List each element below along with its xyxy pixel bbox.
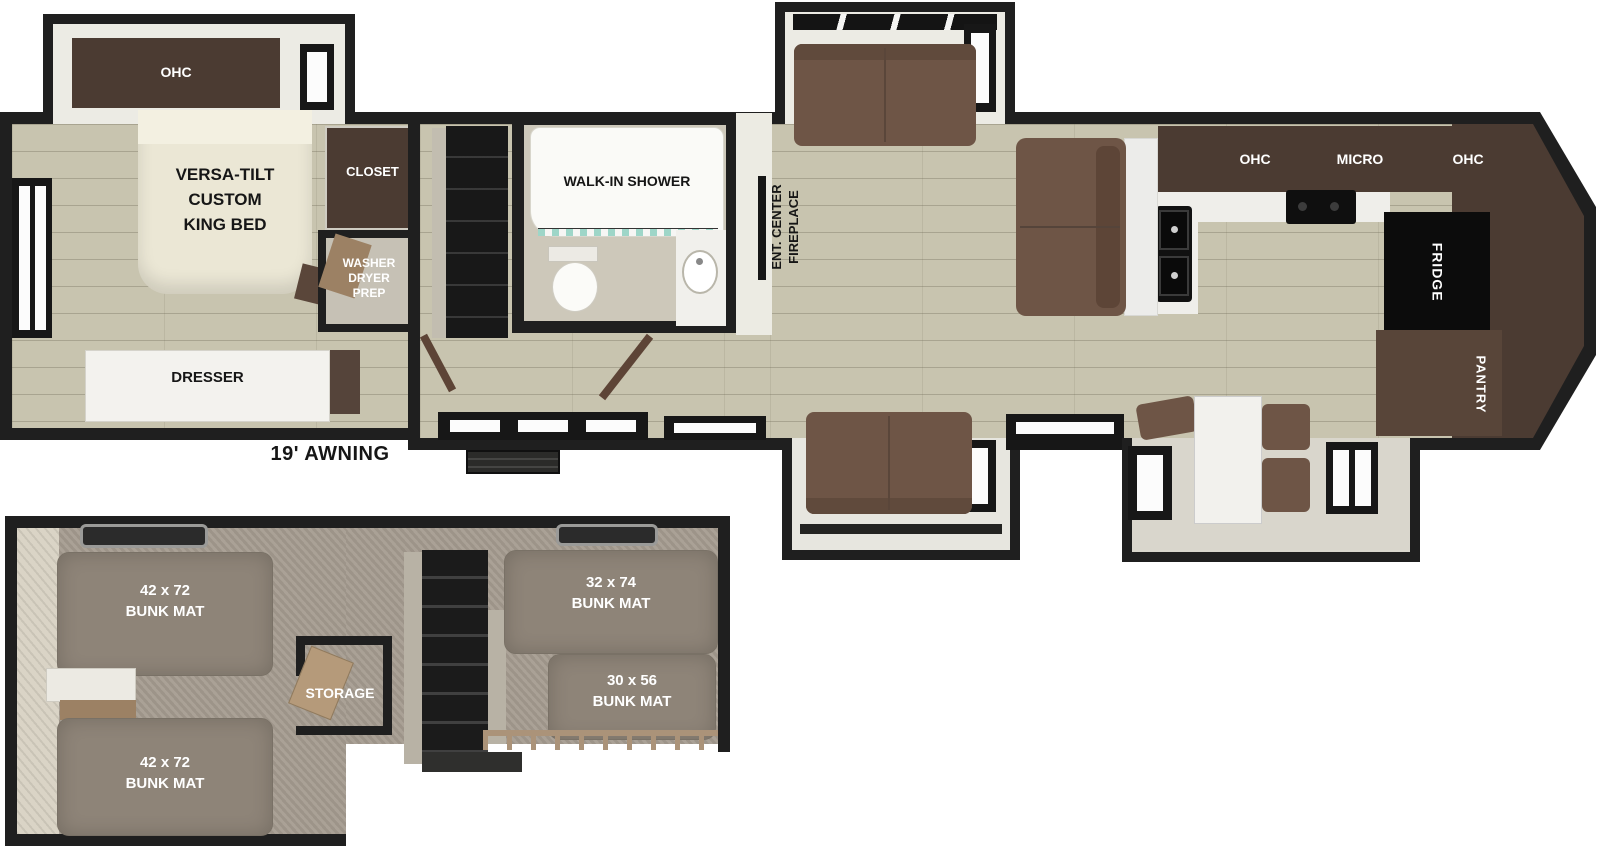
loft-right-wall bbox=[718, 516, 730, 752]
burner bbox=[1330, 202, 1339, 211]
bunk-label-line: 42 x 72 bbox=[57, 580, 273, 601]
window-pane bbox=[450, 420, 500, 432]
bedroom-side-window bbox=[12, 178, 52, 338]
window-pane bbox=[518, 420, 568, 432]
dresser-text: DRESSER bbox=[85, 368, 330, 388]
micro-text: MICRO bbox=[1310, 150, 1410, 168]
slideout-sill bbox=[800, 524, 1002, 534]
bunk-label-line: 30 x 56 bbox=[548, 670, 716, 691]
toilet-tank bbox=[548, 246, 598, 262]
bunk1-label: 42 x 72 BUNK MAT bbox=[57, 580, 273, 622]
storage-text: STORAGE bbox=[282, 684, 398, 702]
loft-railing bbox=[483, 730, 718, 750]
loft-stair-wall bbox=[404, 552, 422, 764]
window-pane bbox=[35, 186, 46, 330]
storage-wall bbox=[296, 726, 392, 735]
shower-text: WALK-IN SHOWER bbox=[530, 172, 724, 190]
dresser-label: DRESSER bbox=[85, 368, 330, 388]
fridge: FRIDGE bbox=[1384, 212, 1490, 332]
loft-stair-landing bbox=[422, 752, 522, 772]
floorplan-canvas: OHC VERSA-TILT CUSTOM KING BED CLOSET WA… bbox=[0, 0, 1600, 848]
bunk4-label: 30 x 56 BUNK MAT bbox=[548, 670, 716, 712]
loft-stairs bbox=[422, 550, 488, 754]
bath-faucet bbox=[696, 258, 703, 265]
window-pane bbox=[1333, 450, 1349, 506]
shower-label: WALK-IN SHOWER bbox=[530, 172, 724, 190]
ent-label-line: ENT. CENTER bbox=[768, 157, 785, 297]
sink-faucet bbox=[1171, 226, 1178, 233]
sink-faucet bbox=[1171, 272, 1178, 279]
window-pane bbox=[1355, 450, 1371, 506]
awning-text: 19' AWNING bbox=[250, 441, 410, 467]
range-cooktop bbox=[1286, 190, 1356, 224]
dinette-chair bbox=[1262, 404, 1310, 450]
skylight bbox=[80, 524, 208, 548]
burner bbox=[1298, 202, 1307, 211]
ent-center-label: ENT. CENTER FIREPLACE bbox=[768, 157, 802, 297]
toilet bbox=[552, 262, 598, 312]
window-pane bbox=[1016, 422, 1114, 434]
loft-nightstand bbox=[46, 668, 136, 702]
window-pane bbox=[307, 52, 327, 102]
loft-left-wall bbox=[5, 516, 17, 846]
entry-window-single bbox=[664, 416, 766, 440]
bed-label-line: CUSTOM bbox=[138, 187, 312, 212]
pantry-label: PANTRY bbox=[1472, 355, 1489, 413]
kitchen-ohc-left-label: OHC bbox=[1205, 150, 1305, 168]
main-stairs bbox=[446, 126, 508, 338]
theater-seat-console bbox=[1124, 138, 1158, 316]
bunk-label-line: BUNK MAT bbox=[57, 601, 273, 622]
bedroom-ohc-label: OHC bbox=[72, 63, 280, 81]
ent-label-line: FIREPLACE bbox=[785, 157, 802, 297]
bunk-label-line: BUNK MAT bbox=[504, 593, 718, 614]
rear-door-window bbox=[1006, 414, 1124, 450]
ent-center-wall bbox=[736, 113, 772, 335]
closet-label: CLOSET bbox=[325, 164, 420, 181]
window-pane bbox=[970, 448, 988, 504]
bunk3-label: 32 x 74 BUNK MAT bbox=[504, 572, 718, 614]
bath-sink bbox=[682, 250, 718, 294]
bunk-label-line: BUNK MAT bbox=[548, 691, 716, 712]
window-pane bbox=[674, 423, 756, 433]
washer-label-line: DRYER bbox=[318, 271, 420, 286]
bedroom-slideout-window bbox=[300, 44, 334, 110]
bedroom-ohc-text: OHC bbox=[72, 63, 280, 81]
washer-label-line: WASHER bbox=[318, 256, 420, 271]
entry-window-triple bbox=[438, 412, 648, 440]
bunk-label-line: BUNK MAT bbox=[57, 773, 273, 794]
washer-label: WASHER DRYER PREP bbox=[318, 256, 420, 301]
dinette-table bbox=[1194, 396, 1262, 524]
dinette-chair bbox=[1262, 458, 1310, 512]
fridge-label: FRIDGE bbox=[1428, 243, 1446, 302]
theater-seat-divider bbox=[1020, 226, 1120, 228]
dresser-side-cabinet bbox=[330, 350, 360, 414]
loft-nightstand-base bbox=[60, 700, 136, 720]
bed-pillows bbox=[138, 110, 312, 144]
kitchen-micro-label: MICRO bbox=[1310, 150, 1410, 168]
kitchen-ohc-right-label: OHC bbox=[1420, 150, 1516, 168]
window-pane bbox=[586, 420, 636, 432]
entry-step bbox=[466, 450, 560, 474]
closet-text: CLOSET bbox=[325, 164, 420, 181]
awning-label: 19' AWNING bbox=[250, 441, 410, 467]
window-pane bbox=[19, 186, 30, 330]
ohc-right-text: OHC bbox=[1420, 150, 1516, 168]
storage-wall bbox=[296, 636, 392, 645]
bed-label-line: VERSA-TILT bbox=[138, 162, 312, 187]
bed-label-line: KING BED bbox=[138, 212, 312, 237]
bunk-label-line: 32 x 74 bbox=[504, 572, 718, 593]
ohc-left-text: OHC bbox=[1205, 150, 1305, 168]
washer-label-line: PREP bbox=[318, 286, 420, 301]
sofa-divider bbox=[884, 48, 886, 142]
dinette-window-right bbox=[1326, 442, 1378, 514]
dinette-window-left bbox=[1128, 446, 1172, 520]
window-pane bbox=[1137, 455, 1163, 511]
sofa-divider bbox=[888, 416, 890, 510]
pantry-label-box: PANTRY bbox=[1462, 334, 1498, 434]
skylight bbox=[556, 524, 658, 546]
fireplace-tv-bar bbox=[758, 176, 766, 280]
storage-label: STORAGE bbox=[282, 684, 398, 702]
bed-label: VERSA-TILT CUSTOM KING BED bbox=[138, 162, 312, 237]
bunk-label-line: 42 x 72 bbox=[57, 752, 273, 773]
bunk2-label: 42 x 72 BUNK MAT bbox=[57, 752, 273, 794]
